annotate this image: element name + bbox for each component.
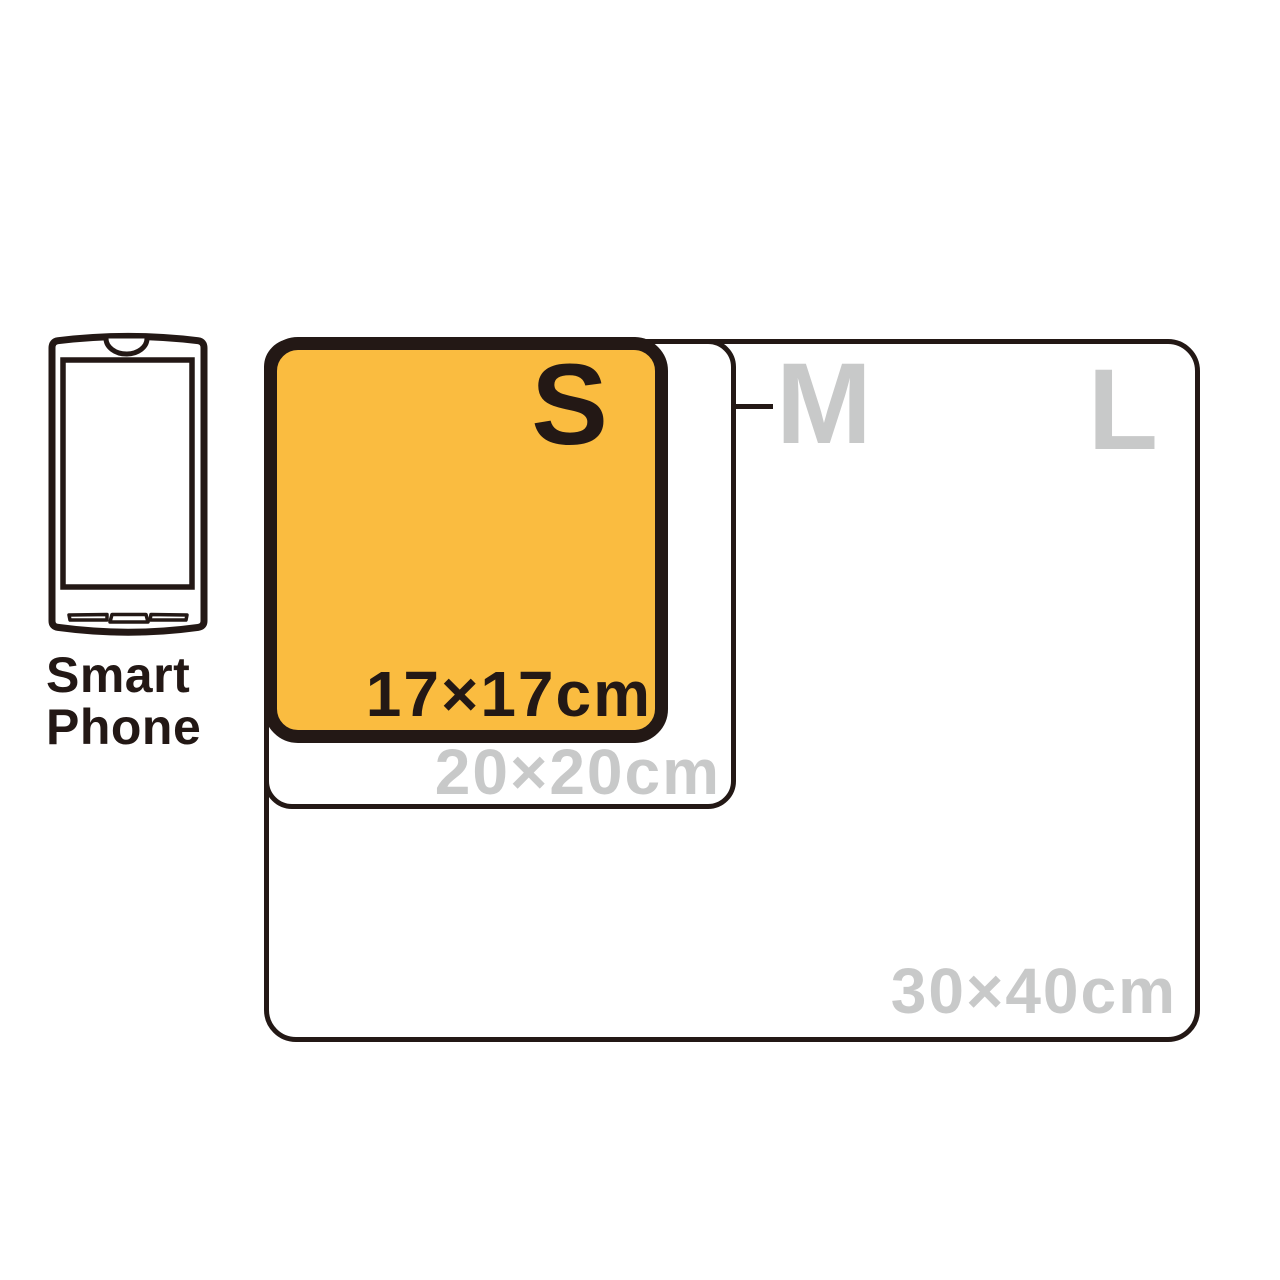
phone-screen bbox=[63, 360, 192, 587]
size-m-letter: M bbox=[776, 347, 872, 462]
smartphone-illustration bbox=[46, 330, 210, 642]
phone-buttons bbox=[69, 615, 187, 623]
size-l-dimension: 30×40cm bbox=[891, 959, 1177, 1023]
size-s-rect: S 17×17cm bbox=[264, 337, 668, 743]
smartphone-label-line1: Smart bbox=[46, 649, 201, 701]
size-s-dimension: 17×17cm bbox=[366, 662, 652, 726]
m-label-connector-line bbox=[736, 404, 773, 409]
size-s-letter: S bbox=[531, 348, 608, 463]
phone-speaker-icon bbox=[106, 339, 147, 354]
smartphone-label-line2: Phone bbox=[46, 701, 201, 753]
size-comparison-diagram: Smart Phone L 30×40cm 20×20cm M S 17×17c… bbox=[0, 0, 1280, 1280]
smartphone-label: Smart Phone bbox=[46, 649, 201, 753]
size-l-letter: L bbox=[1088, 353, 1158, 468]
size-m-dimension: 20×20cm bbox=[435, 740, 721, 804]
